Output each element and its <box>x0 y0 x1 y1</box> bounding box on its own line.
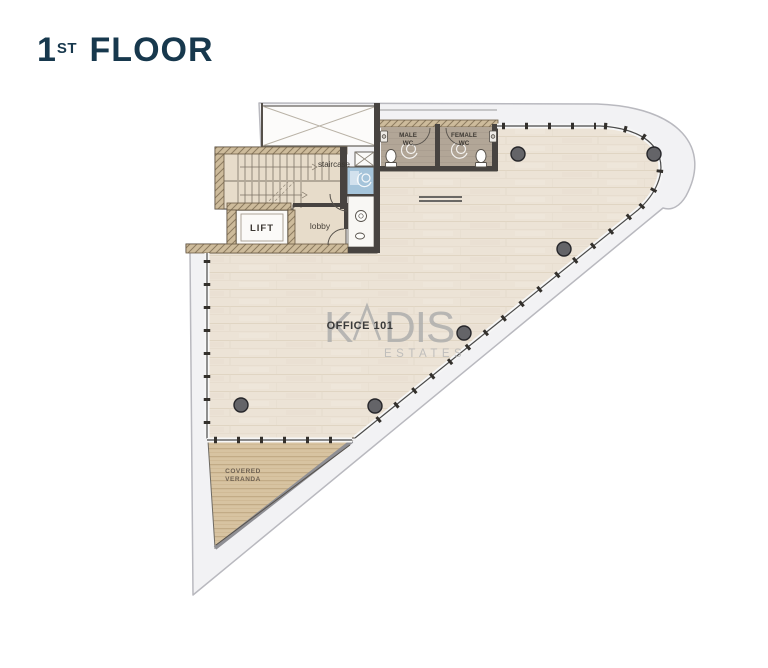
column <box>457 326 471 340</box>
svg-text:MALE: MALE <box>399 132 417 139</box>
lift-label: LIFT <box>250 223 274 234</box>
svg-text:FEMALE: FEMALE <box>451 132 477 139</box>
office-label: OFFICE 101 <box>327 320 394 332</box>
column <box>368 399 382 413</box>
watermark-dis: DIS <box>384 303 454 352</box>
void-shaft <box>262 103 377 147</box>
svg-text:VERANDA: VERANDA <box>225 476 261 483</box>
column <box>647 147 661 161</box>
floor-plan-svg: K DIS ESTATES OFFICE 101 staircase LIFT … <box>0 0 768 668</box>
column <box>234 398 248 412</box>
watermark-estates: ESTATES <box>384 348 466 360</box>
floor-plan-page: 1ST FLOOR <box>0 0 768 668</box>
staircase-label: staircase <box>318 160 351 169</box>
veranda-label: COVERED VERANDA <box>225 468 261 483</box>
column <box>557 242 571 256</box>
svg-text:WC: WC <box>403 140 414 147</box>
column <box>511 147 525 161</box>
svg-text:COVERED: COVERED <box>225 468 261 475</box>
lobby-label: lobby <box>310 221 331 231</box>
svg-text:WC: WC <box>459 140 470 147</box>
veranda <box>208 441 352 548</box>
